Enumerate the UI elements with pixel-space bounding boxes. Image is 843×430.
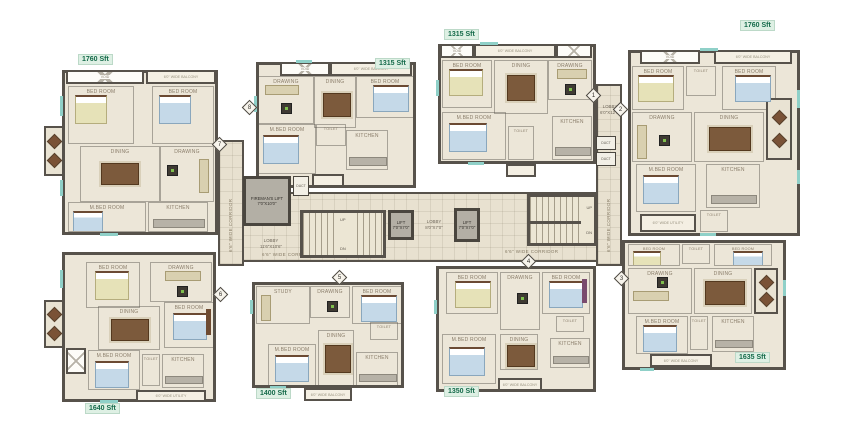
window-strip (700, 233, 716, 236)
room-label: DINING (326, 79, 345, 85)
kitchen-counter-icon (359, 374, 397, 382)
room-label: BED ROOM (363, 289, 392, 295)
room-toilet: TOILET (690, 316, 708, 350)
window-strip (797, 90, 800, 108)
room-label: BED ROOM (99, 265, 128, 271)
void-label: VOID (452, 49, 463, 53)
marker-number: 3 (616, 273, 627, 284)
room-master-bedroom: M.BED ROOM (636, 164, 696, 212)
room-label: DINING (714, 271, 733, 277)
unit-area-label: 1640 Sft (85, 403, 120, 414)
sit-out (766, 98, 792, 160)
stairs-up-label: UP (586, 205, 592, 210)
utility: 6'0" WIDE UTILITY (640, 214, 696, 232)
balcony (312, 174, 344, 187)
tv-unit-icon (517, 293, 528, 304)
room-label: BED ROOM (735, 69, 764, 75)
sofa-icon (199, 159, 209, 193)
void-label: VOID (100, 75, 111, 79)
dining-table-icon (323, 93, 351, 117)
window-strip (60, 96, 63, 116)
bed-icon (735, 75, 771, 102)
dining-table-icon (507, 75, 535, 101)
room-label: TOILET (324, 127, 338, 132)
room-label: BED ROOM (87, 89, 116, 95)
sofa-icon (265, 85, 299, 95)
room-label: M.BED ROOM (90, 205, 125, 211)
window-strip (797, 170, 800, 184)
room-label: KITCHEN (560, 119, 583, 125)
bed-icon (643, 175, 679, 204)
unit-area-label: 1400 Sft (256, 388, 291, 399)
sit-out (754, 268, 778, 314)
room-label: DRAWING (647, 271, 672, 277)
unit-area-label: 1315 Sft (444, 29, 479, 40)
dining-table-icon (705, 281, 745, 305)
floor-motif-icon (771, 110, 787, 126)
room-label: BED ROOM (643, 247, 665, 252)
wardrobe-icon (206, 309, 211, 335)
bed-icon (159, 95, 191, 124)
marker-number: 6 (215, 289, 226, 300)
room-bedroom: BED ROOM (152, 86, 214, 144)
stairs-down-label: DN (340, 246, 346, 251)
tv-unit-icon (177, 286, 188, 297)
bed-icon (95, 271, 129, 300)
room-study: STUDY (256, 286, 310, 324)
desk-icon (261, 295, 271, 321)
room-label: TOILET (144, 357, 158, 362)
unit-area-label: 1635 Sft (735, 352, 770, 363)
room-dining: DINING (318, 330, 354, 386)
room-kitchen: KITCHEN (356, 352, 398, 386)
room-master-bedroom: M.BED ROOM (442, 112, 506, 160)
dining-table-icon (325, 345, 351, 373)
lobby-mid-dim: 8'0"X7'0" (425, 225, 443, 231)
room-label: TOILET (563, 319, 577, 324)
tv-unit-icon (281, 103, 292, 114)
bed-icon (95, 361, 129, 388)
room-label: M.BED ROOM (452, 337, 487, 343)
void-label: VOID (665, 55, 676, 59)
bed-icon (173, 313, 207, 340)
balcony-label: 6'0" WIDE BALCONY (664, 359, 699, 363)
room-label: DINING (720, 115, 739, 121)
room-dining: DINING (500, 334, 538, 370)
balcony-label: 6'0" WIDE BALCONY (736, 55, 771, 59)
room-bedroom: BED ROOM (356, 76, 414, 118)
room-label: BED ROOM (453, 63, 482, 69)
tv-unit-icon (565, 84, 576, 95)
sit-out (44, 300, 64, 348)
room-label: DRAWING (273, 79, 298, 85)
room-label: DRAWING (507, 275, 532, 281)
room-kitchen: KITCHEN (550, 338, 590, 368)
balcony: 6'0" WIDE BALCONY (304, 388, 352, 401)
dining-table-icon (507, 345, 535, 367)
unit-marker: 8 (244, 102, 255, 113)
unit-area-label: 1760 Sft (78, 54, 113, 65)
utility-label: 6'0" WIDE UTILITY (653, 221, 684, 225)
room-label: DRAWING (317, 289, 342, 295)
bed-icon (638, 75, 674, 102)
balcony-label: 6'0" WIDE BALCONY (503, 383, 538, 387)
balcony: 6'0" WIDE BALCONY (714, 50, 792, 64)
bed-icon (449, 347, 485, 376)
balcony-label: 6'0" WIDE BALCONY (311, 393, 346, 397)
dining-table-icon (101, 163, 139, 185)
room-label: TOILET (689, 247, 703, 252)
bed-icon (373, 85, 409, 112)
room-toilet: TOILET (316, 124, 346, 146)
window-strip (60, 270, 63, 288)
room-label: DRAWING (649, 115, 674, 121)
room-kitchen: KITCHEN (706, 164, 760, 208)
room-kitchen: KITCHEN (148, 202, 208, 232)
room-label: KITCHEN (721, 167, 744, 173)
tv-unit-icon (167, 165, 178, 176)
bed-icon (75, 95, 107, 124)
room-label: TOILET (377, 325, 391, 330)
window-strip (468, 162, 484, 165)
duct-shaft: DUCT (293, 176, 309, 196)
room-label: M.BED ROOM (270, 127, 305, 133)
room-dining: DINING (80, 146, 160, 202)
room-master-bedroom: M.BED ROOM (68, 202, 146, 232)
floor-motif-icon (771, 133, 787, 149)
room-kitchen: KITCHEN (346, 130, 388, 170)
lobby-mid: LOBBY 8'0"X7'0" (416, 210, 452, 240)
room-label: KITCHEN (355, 133, 378, 139)
room-dining: DINING (694, 112, 764, 162)
window-strip (480, 42, 498, 45)
bed-icon (449, 123, 487, 152)
lift-2: LIFT 7'0"X7'0" (454, 208, 480, 242)
sofa-icon (633, 291, 669, 301)
marker-number: 4 (523, 256, 534, 267)
room-label: KITCHEN (365, 355, 388, 361)
room-label: DINING (120, 309, 139, 315)
room-drawing: DRAWING (258, 76, 314, 124)
room-dining: DINING (494, 60, 548, 114)
void-area: VOID (640, 50, 700, 64)
stairs-up-label: UP (340, 217, 346, 222)
kitchen-counter-icon (349, 157, 387, 166)
lobby-main-dim: 11'6"X10'6" (260, 244, 282, 250)
room-label: BED ROOM (732, 247, 754, 252)
balcony: 6'0" WIDE BALCONY (498, 378, 542, 391)
room-bedroom: BED ROOM (86, 262, 140, 308)
room-label: M.BED ROOM (457, 115, 492, 121)
balcony: 6'0" WIDE BALCONY (474, 44, 556, 58)
bed-icon (643, 325, 677, 352)
fireman-lift-dim: 7'0"X10'0" (251, 201, 283, 206)
floor-motif-icon (758, 274, 774, 290)
utility-label: 6'0" WIDE UTILITY (156, 394, 187, 398)
room-label: M.BED ROOM (649, 167, 684, 173)
kitchen-counter-icon (165, 376, 203, 384)
unit-marker: 7 (214, 139, 225, 150)
kitchen-counter-icon (555, 147, 591, 156)
room-label: TOILET (692, 319, 706, 324)
kitchen-counter-icon (553, 356, 589, 364)
tv-unit-icon (659, 135, 670, 146)
window-strip (100, 233, 118, 236)
room-master-bedroom: M.BED ROOM (88, 350, 140, 390)
bed-icon (733, 251, 763, 266)
marker-number: 2 (615, 104, 626, 115)
room-label: TOILET (694, 69, 708, 74)
tv-unit-icon (657, 277, 668, 288)
room-master-bedroom: M.BED ROOM (258, 124, 316, 174)
stairs-down-label: DN (586, 230, 592, 235)
room-label: STUDY (274, 289, 292, 295)
wardrobe-icon (582, 279, 587, 303)
room-label: BED ROOM (552, 275, 581, 281)
duct-label: DUCT (601, 141, 610, 145)
room-drawing: DRAWING (160, 146, 214, 202)
room-dining: DINING (314, 76, 356, 128)
window-strip (250, 300, 253, 314)
room-label: DRAWING (557, 63, 582, 69)
duct-shaft: DUCT (596, 136, 616, 150)
unit-marker: 5 (334, 272, 345, 283)
marker-number: 8 (244, 102, 255, 113)
room-label: KITCHEN (558, 341, 581, 347)
unit-area-label: 1760 Sft (740, 20, 775, 31)
staircase-left: UP DN (300, 210, 386, 258)
room-drawing: DRAWING (632, 112, 692, 162)
room-label: KITCHEN (166, 205, 189, 211)
void-area (556, 44, 592, 58)
window-strip (436, 80, 439, 96)
kitchen-counter-icon (153, 219, 205, 228)
room-label: BED ROOM (644, 69, 673, 75)
room-label: BED ROOM (371, 79, 400, 85)
room-master-bedroom: M.BED ROOM (636, 316, 688, 354)
room-label: M.BED ROOM (275, 347, 310, 353)
utility: 6'0" WIDE UTILITY (136, 390, 206, 402)
room-label: KITCHEN (721, 319, 744, 325)
staircase-right: UP DN (527, 194, 597, 246)
corridor-label-vleft: 6'6" WIDE CORRIDOR (228, 199, 233, 252)
lift-1-dim: 7'0"X7'0" (393, 225, 410, 230)
room-label: TOILET (514, 129, 528, 134)
unit-area-label: 1350 Sft (444, 386, 479, 397)
window-strip (296, 60, 312, 63)
marker-number: 7 (214, 139, 225, 150)
unit-area-label: 1315 Sft (375, 58, 410, 69)
room-toilet: TOILET (370, 322, 398, 340)
floor-motif-icon (46, 307, 62, 323)
room-drawing: DRAWING (150, 262, 212, 302)
bed-icon (455, 281, 491, 308)
unit-marker: 2 (615, 104, 626, 115)
balcony: 6'0" WIDE BALCONY (146, 70, 216, 84)
room-label: KITCHEN (171, 357, 194, 363)
sofa-icon (637, 125, 647, 159)
dining-table-icon (111, 319, 149, 341)
marker-number: 5 (334, 272, 345, 283)
room-toilet: TOILET (556, 316, 584, 332)
lift-2-dim: 7'0"X7'0" (459, 225, 476, 230)
floor-plan-canvas: 6'6" WIDE CORRIDOR 6'6" WIDE CORRIDOR 6'… (0, 0, 843, 430)
tv-unit-icon (327, 301, 338, 312)
unit-marker: 4 (523, 256, 534, 267)
fireman-lift: FIREMAN'S LIFT 7'0"X10'0" (243, 176, 291, 226)
void-area: VOID (440, 44, 474, 58)
balcony-label: 6'0" WIDE BALCONY (498, 49, 533, 53)
bed-icon (361, 295, 397, 322)
bed-icon (73, 211, 103, 232)
room-toilet: TOILET (508, 126, 534, 160)
room-dining: DINING (98, 306, 160, 350)
window-strip (640, 368, 654, 371)
void-area: VOID (66, 70, 144, 84)
void-label: VOID (300, 67, 311, 71)
dining-table-icon (709, 127, 751, 151)
room-drawing: DRAWING (500, 272, 540, 330)
bed-icon (275, 355, 309, 382)
bed-icon (449, 69, 483, 96)
room-label: DINING (512, 63, 531, 69)
duct-label: DUCT (601, 157, 610, 161)
lift-1: LIFT 7'0"X7'0" (388, 210, 414, 240)
floor-motif-icon (758, 292, 774, 308)
unit-marker: 1 (588, 90, 599, 101)
marker-number: 1 (588, 90, 599, 101)
room-bedroom: BED ROOM (442, 60, 492, 108)
unit-marker: 6 (215, 289, 226, 300)
room-label: BED ROOM (175, 305, 204, 311)
bed-icon (633, 251, 661, 266)
room-bedroom: BED ROOM (164, 302, 214, 348)
floor-motif-icon (46, 134, 62, 150)
room-bedroom: BED ROOM (632, 66, 684, 110)
lobby-main: LOBBY 11'6"X10'6" (240, 228, 302, 260)
stair-landing (581, 197, 594, 243)
room-bedroom: BED ROOM (352, 286, 402, 324)
room-bedroom: BED ROOM (628, 244, 680, 266)
sofa-icon (557, 69, 587, 79)
room-label: TOILET (707, 213, 721, 218)
unit-marker: 3 (616, 273, 627, 284)
room-master-bedroom: M.BED ROOM (268, 344, 316, 386)
void-area (66, 348, 86, 374)
room-label: M.BED ROOM (97, 353, 132, 359)
void-area: VOID (280, 62, 330, 76)
room-label: DRAWING (174, 149, 199, 155)
kitchen-counter-icon (711, 195, 757, 204)
sit-out (44, 126, 64, 176)
room-label: DINING (327, 333, 346, 339)
room-bedroom: BED ROOM (446, 272, 498, 314)
balcony (506, 164, 536, 177)
duct-label: DUCT (296, 184, 305, 188)
room-label: BED ROOM (458, 275, 487, 281)
room-bedroom: BED ROOM (68, 86, 134, 144)
room-kitchen: KITCHEN (552, 116, 592, 160)
room-label: M.BED ROOM (645, 319, 680, 325)
floor-motif-icon (46, 325, 62, 341)
window-strip (783, 280, 786, 296)
sofa-icon (165, 271, 201, 281)
kitchen-counter-icon (715, 340, 753, 348)
room-toilet: TOILET (700, 210, 728, 232)
room-kitchen: KITCHEN (712, 316, 754, 352)
room-toilet: TOILET (682, 244, 710, 264)
room-bedroom: BED ROOM (542, 272, 590, 314)
room-drawing: DRAWING (310, 286, 350, 318)
window-strip (700, 48, 718, 51)
corridor-label-vright: 6'6" WIDE CORRIDOR (606, 199, 611, 252)
room-label: DRAWING (168, 265, 193, 271)
room-drawing: DRAWING (628, 268, 692, 314)
room-kitchen: KITCHEN (162, 354, 204, 388)
room-toilet: TOILET (142, 354, 160, 386)
balcony: 6'0" WIDE BALCONY (650, 354, 712, 367)
room-toilet: TOILET (686, 66, 716, 96)
window-strip (434, 300, 437, 314)
bed-icon (263, 135, 299, 164)
room-label: DINING (111, 149, 130, 155)
room-master-bedroom: M.BED ROOM (442, 334, 496, 384)
bed-icon (549, 281, 583, 308)
window-strip (60, 180, 63, 196)
duct-shaft: DUCT (596, 152, 616, 166)
room-dining: DINING (694, 268, 752, 314)
corridor-label-right: 6'6" WIDE CORRIDOR (505, 249, 558, 254)
room-label: BED ROOM (169, 89, 198, 95)
room-bedroom: BED ROOM (714, 244, 772, 266)
balcony-label: 6'0" WIDE BALCONY (164, 75, 199, 79)
room-label: DINING (510, 337, 529, 343)
floor-motif-icon (46, 153, 62, 169)
